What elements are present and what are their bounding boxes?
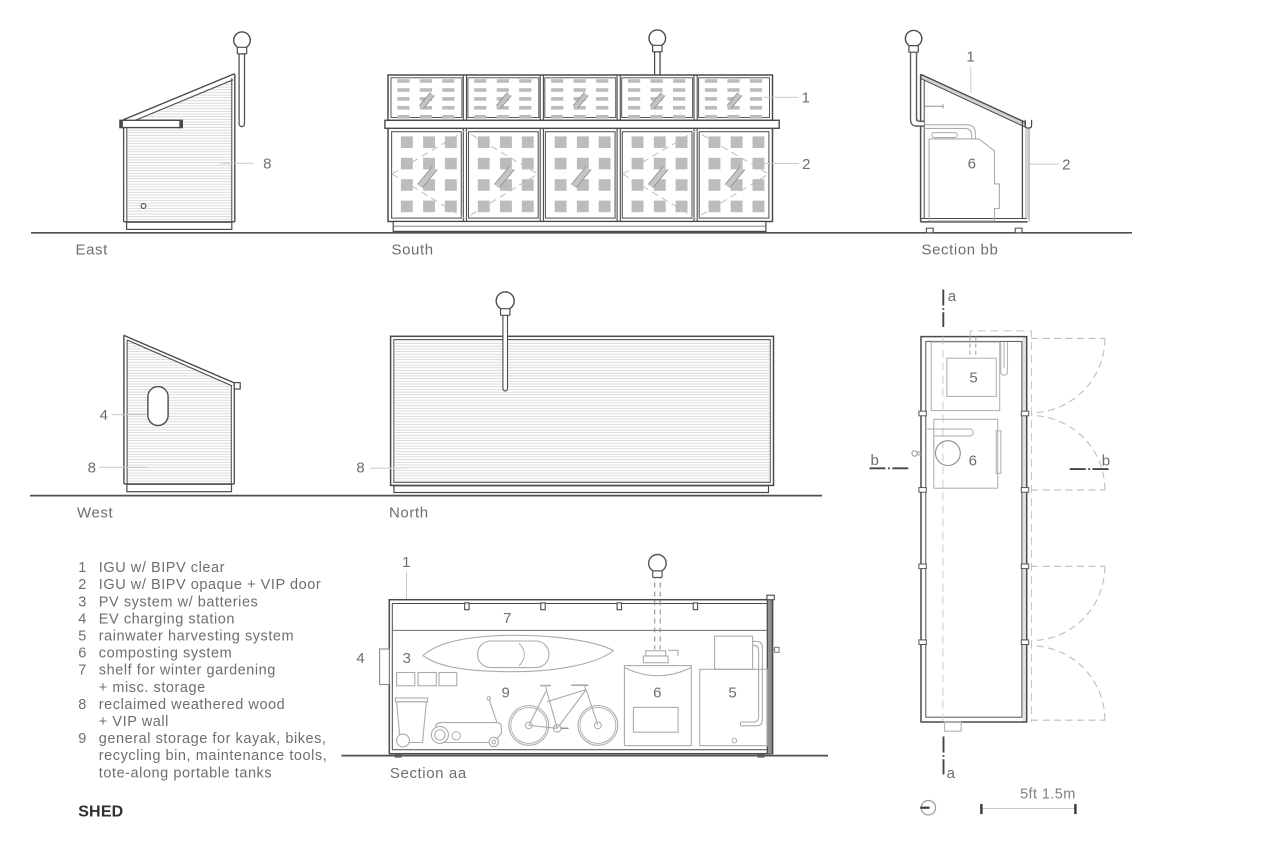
svg-text:2: 2 [1062,156,1071,173]
svg-text:recycling bin, maintenance too: recycling bin, maintenance tools, [99,748,328,764]
svg-text:6: 6 [653,685,662,702]
svg-text:reclaimed weathered wood: reclaimed weathered wood [99,697,285,713]
svg-text:composting system: composting system [99,646,232,662]
svg-text:+ VIP wall: + VIP wall [99,714,169,730]
svg-text:East: East [76,241,109,258]
svg-text:tote-along portable tanks: tote-along portable tanks [99,765,272,781]
svg-text:b: b [1102,452,1111,469]
svg-text:4: 4 [356,650,365,667]
svg-text:2: 2 [78,577,87,593]
svg-text:4: 4 [100,407,109,424]
svg-text:b: b [871,452,880,469]
svg-text:6: 6 [968,155,977,172]
svg-text:general storage for kayak, bik: general storage for kayak, bikes, [99,731,327,747]
svg-text:West: West [77,504,114,521]
svg-text:2: 2 [802,156,811,173]
svg-text:9: 9 [78,731,87,747]
svg-text:IGU w/ BIPV clear: IGU w/ BIPV clear [99,560,225,576]
svg-text:+ misc. storage: + misc. storage [99,680,206,696]
svg-text:7: 7 [503,610,512,627]
svg-text:Section bb: Section bb [922,241,999,258]
svg-text:9: 9 [502,685,511,702]
svg-text:North: North [389,504,429,521]
svg-text:1: 1 [402,554,411,571]
svg-text:3: 3 [403,650,412,667]
svg-text:8: 8 [88,459,97,476]
svg-text:5: 5 [969,369,978,386]
svg-text:rainwater harvesting system: rainwater harvesting system [99,629,294,645]
svg-text:5: 5 [78,629,87,645]
svg-text:8: 8 [356,459,365,476]
svg-text:South: South [392,241,434,258]
svg-text:8: 8 [263,156,272,173]
svg-text:5: 5 [728,685,737,702]
svg-text:4: 4 [78,611,87,627]
svg-text:a: a [948,288,957,305]
svg-text:5ft 1.5m: 5ft 1.5m [1020,787,1076,803]
svg-text:Section aa: Section aa [390,765,467,782]
svg-text:a: a [947,765,956,782]
svg-text:7: 7 [78,663,87,679]
svg-text:1: 1 [802,90,811,107]
svg-text:6: 6 [969,453,978,470]
svg-text:PV system w/ batteries: PV system w/ batteries [99,594,259,610]
svg-text:SHED: SHED [78,803,123,820]
svg-text:8: 8 [78,697,87,713]
svg-text:1: 1 [966,49,975,66]
svg-text:EV charging station: EV charging station [99,611,235,627]
svg-text:shelf for winter gardening: shelf for winter gardening [99,663,276,679]
svg-text:6: 6 [78,646,87,662]
svg-text:IGU w/ BIPV opaque + VIP door: IGU w/ BIPV opaque + VIP door [99,577,321,593]
svg-text:1: 1 [78,560,87,576]
svg-text:3: 3 [78,594,87,610]
